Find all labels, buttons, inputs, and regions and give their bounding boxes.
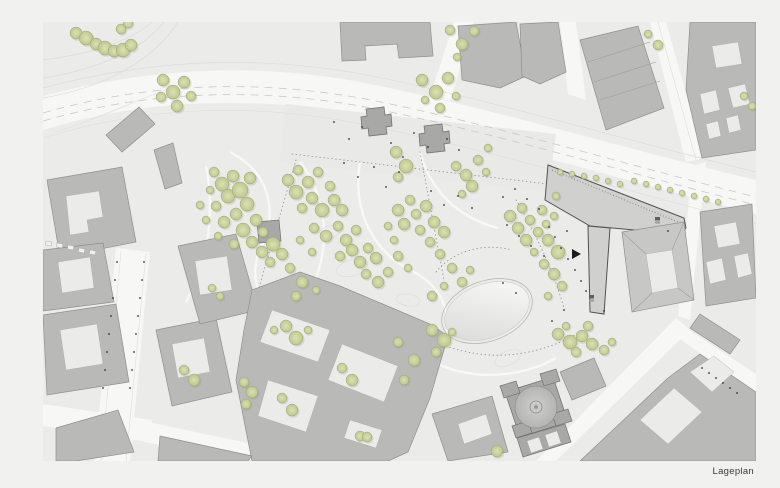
tree: [448, 328, 456, 336]
tree: [445, 25, 455, 35]
ground-dot: [361, 126, 363, 128]
tree: [393, 251, 403, 261]
tree: [631, 178, 637, 184]
paper-margin: [756, 0, 780, 488]
tree: [384, 222, 392, 230]
building-north-2: [458, 22, 526, 88]
ground-dot: [543, 255, 545, 257]
tree: [411, 209, 421, 219]
ground-dot: [357, 176, 359, 178]
tree: [211, 201, 221, 211]
ground-dot: [667, 230, 669, 232]
building-label-mark: [655, 217, 660, 221]
ground-dot: [131, 369, 133, 371]
tree: [456, 38, 468, 50]
tree: [581, 173, 587, 179]
site-plan-drawing: [0, 0, 780, 488]
tree: [282, 174, 294, 186]
ground-dot: [566, 230, 568, 232]
ground-dot: [135, 333, 137, 335]
tree: [256, 246, 268, 258]
tree: [296, 236, 304, 244]
tree: [289, 331, 303, 345]
tree: [715, 199, 721, 205]
ground-dot: [343, 162, 345, 164]
ground-dot: [518, 235, 520, 237]
ground-dot: [102, 387, 104, 389]
tree: [214, 232, 222, 240]
tree: [458, 190, 466, 198]
tree: [393, 337, 403, 347]
ground-dot: [133, 351, 135, 353]
tree: [289, 185, 303, 199]
tree: [166, 85, 180, 99]
tree: [599, 345, 609, 355]
ground-dot: [348, 138, 350, 140]
ground-dot: [141, 279, 143, 281]
tree: [405, 195, 415, 205]
tree: [216, 292, 224, 300]
tree: [346, 244, 358, 256]
tree: [740, 92, 748, 100]
ground-dot: [143, 261, 145, 263]
tree: [157, 74, 169, 86]
plot-marker: [78, 248, 85, 253]
tree: [491, 445, 503, 457]
courtyard-cutout: [714, 222, 740, 248]
tree: [593, 175, 599, 181]
tree: [551, 245, 565, 259]
tree: [306, 192, 318, 204]
ground-dot: [458, 149, 460, 151]
ground-dot: [580, 280, 582, 282]
ground-dot: [471, 207, 473, 209]
tree: [363, 243, 373, 253]
tree: [426, 324, 438, 336]
tree: [293, 165, 303, 175]
tree: [230, 208, 242, 220]
ground-dot: [722, 382, 724, 384]
tree: [270, 326, 278, 334]
tree: [562, 322, 570, 330]
ground-dot: [560, 247, 562, 249]
tree: [229, 239, 239, 249]
tree: [576, 330, 588, 342]
tree: [438, 226, 450, 238]
tree: [415, 225, 425, 235]
tree: [525, 215, 535, 225]
tree: [390, 236, 398, 244]
plot-marker: [67, 245, 74, 250]
ground-dot: [110, 315, 112, 317]
tree: [644, 30, 652, 38]
tree: [473, 155, 483, 165]
tree: [512, 222, 524, 234]
tree: [285, 263, 295, 273]
tree: [571, 347, 581, 357]
tree: [206, 186, 214, 194]
tree: [617, 181, 623, 187]
tree: [408, 354, 420, 366]
plot-marker: [45, 241, 52, 246]
tree: [484, 144, 492, 152]
ground-dot: [446, 138, 448, 140]
tree: [361, 269, 371, 279]
ground-dot: [116, 261, 118, 263]
ground-dot: [139, 297, 141, 299]
tree: [297, 203, 307, 213]
tree: [451, 161, 461, 171]
tree: [504, 210, 516, 222]
ground-dot: [530, 245, 532, 247]
ground-dot: [373, 166, 375, 168]
ground-dot: [104, 369, 106, 371]
tree: [435, 249, 445, 259]
courtyard-cutout: [58, 257, 94, 293]
tree: [533, 227, 543, 237]
tree: [437, 333, 451, 347]
tree: [435, 103, 445, 113]
tree: [291, 291, 301, 301]
tree: [457, 277, 467, 287]
ground-dot: [701, 367, 703, 369]
tree: [431, 347, 441, 357]
tree: [442, 72, 454, 84]
tree: [517, 203, 527, 213]
ground-dot: [515, 292, 517, 294]
tree: [530, 248, 538, 256]
tree: [241, 399, 251, 409]
tree: [691, 193, 697, 199]
ground-dot: [551, 320, 553, 322]
tree: [246, 236, 258, 248]
tree: [335, 251, 345, 261]
ground-dot: [114, 279, 116, 281]
dome-lantern: [534, 405, 538, 409]
ground-dot: [385, 186, 387, 188]
tree: [520, 234, 532, 246]
tree: [178, 76, 190, 88]
tree: [370, 252, 382, 264]
tree: [296, 276, 308, 288]
tree: [351, 225, 361, 235]
tree: [196, 201, 204, 209]
tree: [372, 276, 384, 288]
ground-dot: [554, 236, 556, 238]
ground-dot: [443, 204, 445, 206]
tree: [583, 321, 593, 331]
building-label-mark: [589, 295, 594, 299]
tree: [218, 216, 230, 228]
ground-dot: [108, 333, 110, 335]
tree: [156, 92, 166, 102]
tree: [240, 197, 254, 211]
dome-layer: [515, 386, 557, 428]
tree: [265, 257, 275, 267]
ground-dot: [402, 156, 404, 158]
ground-dot: [506, 224, 508, 226]
tree: [440, 282, 448, 290]
tree: [328, 194, 340, 206]
tree: [466, 180, 478, 192]
tree: [227, 170, 239, 182]
courtyard-cutout: [60, 324, 103, 370]
tree: [703, 196, 709, 202]
tree: [280, 320, 292, 332]
tree: [569, 171, 575, 177]
tree: [336, 204, 348, 216]
site-plan: Lageplan: [0, 0, 780, 488]
tree: [425, 237, 435, 247]
tree: [362, 432, 372, 442]
tree: [548, 268, 560, 280]
ground-dot: [574, 269, 576, 271]
tree: [643, 181, 649, 187]
ground-dot: [333, 121, 335, 123]
tree: [393, 172, 403, 182]
ground-dot: [715, 377, 717, 379]
tree: [188, 374, 200, 386]
tree: [208, 284, 216, 292]
tree: [427, 291, 437, 301]
tree: [302, 176, 314, 188]
tree: [416, 74, 428, 86]
paper-margin: [0, 0, 780, 22]
ground-dot: [603, 310, 605, 312]
tree: [277, 393, 287, 403]
tree: [125, 39, 137, 51]
tree: [236, 223, 250, 237]
tree: [398, 218, 410, 230]
plan-title: Lageplan: [713, 466, 755, 477]
ground-dot: [708, 372, 710, 374]
ground-dot: [427, 146, 429, 148]
ground-dot: [538, 208, 540, 210]
tree: [346, 374, 358, 386]
tree: [266, 237, 280, 251]
paper-margin: [0, 461, 780, 488]
ground-dot: [567, 258, 569, 260]
tree: [748, 102, 756, 110]
tree: [202, 216, 210, 224]
tree: [428, 216, 440, 228]
tree: [179, 365, 189, 375]
tree: [447, 263, 457, 273]
tree: [542, 234, 554, 246]
ground-dot: [112, 297, 114, 299]
tree: [246, 386, 258, 398]
tree: [667, 187, 673, 193]
tree: [313, 167, 323, 177]
tree: [309, 223, 319, 233]
ground-dot: [563, 309, 565, 311]
tree: [308, 248, 316, 256]
plot-marker: [89, 250, 96, 255]
ground-dot: [526, 198, 528, 200]
ground-dot: [457, 195, 459, 197]
tree: [469, 26, 479, 36]
tree: [586, 338, 598, 350]
tree: [550, 212, 558, 220]
ground-dot: [502, 196, 504, 198]
tree: [383, 267, 393, 277]
ground-dot: [585, 290, 587, 292]
tree: [186, 91, 196, 101]
building-label-mark: [655, 222, 660, 224]
tree: [337, 363, 347, 373]
tree: [460, 169, 472, 181]
plot-marker: [56, 243, 63, 248]
courtyard-cutout: [712, 42, 742, 68]
tree: [399, 375, 409, 385]
ground-dot: [398, 171, 400, 173]
tree: [239, 377, 249, 387]
ground-dot: [129, 387, 131, 389]
tree: [315, 203, 329, 217]
tree: [250, 214, 262, 226]
tree: [304, 326, 312, 334]
tree: [232, 182, 248, 198]
ground-dot: [736, 392, 738, 394]
building-label-mark: [589, 300, 594, 302]
tree: [466, 266, 474, 274]
tree: [453, 53, 461, 61]
tree: [537, 205, 547, 215]
tree: [420, 200, 432, 212]
ground-dot: [514, 188, 516, 190]
tree: [333, 221, 343, 231]
ground-dot: [106, 351, 108, 353]
ground-dot: [137, 315, 139, 317]
tree: [244, 172, 256, 184]
tree: [653, 40, 663, 50]
tree: [679, 190, 685, 196]
tree: [552, 192, 560, 200]
tree: [557, 169, 563, 175]
tree: [171, 100, 183, 112]
building-north-3: [520, 22, 566, 84]
ground-dot: [729, 387, 731, 389]
tree: [608, 338, 616, 346]
tree: [482, 168, 490, 176]
tree: [605, 178, 611, 184]
tree: [539, 259, 549, 269]
ground-dot: [502, 282, 504, 284]
ground-dot: [413, 132, 415, 134]
tree: [312, 286, 320, 294]
tree: [404, 264, 412, 272]
tree: [320, 230, 332, 242]
courtyard-cutout: [172, 338, 210, 378]
tree: [452, 92, 460, 100]
tree: [390, 146, 402, 158]
ground-dot: [548, 226, 550, 228]
ground-dot: [430, 190, 432, 192]
tree: [544, 292, 552, 300]
tree: [286, 404, 298, 416]
tree: [392, 204, 404, 216]
tree: [258, 227, 268, 237]
tree: [552, 328, 564, 340]
tree: [655, 184, 661, 190]
tree: [354, 256, 366, 268]
tree: [325, 181, 335, 191]
tree: [421, 96, 429, 104]
tree: [209, 167, 219, 177]
tree: [399, 159, 413, 173]
paper-margin: [0, 0, 43, 488]
tree: [276, 248, 288, 260]
tree: [429, 85, 443, 99]
ground-dot: [390, 142, 392, 144]
tree: [557, 281, 567, 291]
